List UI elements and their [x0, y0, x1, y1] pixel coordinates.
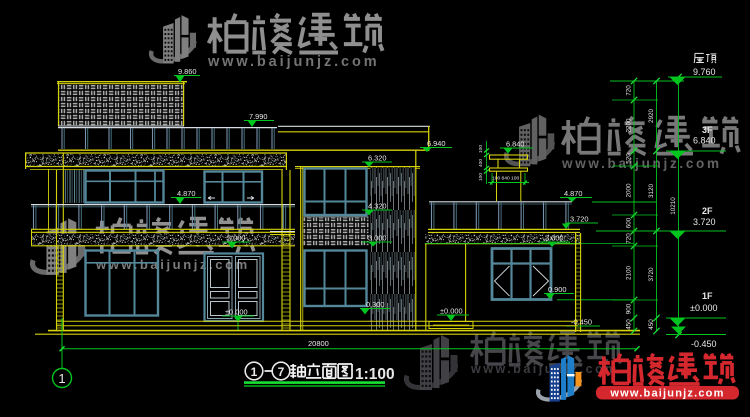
svg-text:3120: 3120	[648, 184, 655, 199]
svg-text:±0.000: ±0.000	[225, 308, 248, 317]
svg-text:600: 600	[626, 217, 633, 228]
svg-text:450: 450	[626, 319, 633, 330]
svg-text:4.870: 4.870	[564, 189, 583, 198]
svg-text:0.900: 0.900	[548, 285, 567, 294]
svg-text:www.baijunjz.com: www.baijunjz.com	[207, 54, 380, 70]
svg-text:-0.450: -0.450	[571, 318, 592, 327]
svg-text:2F: 2F	[702, 206, 713, 216]
svg-text:6.320: 6.320	[368, 154, 387, 163]
svg-text:4.320: 4.320	[368, 202, 387, 211]
svg-text:100: 100	[478, 145, 484, 153]
svg-text:6.940: 6.940	[427, 139, 446, 148]
svg-text:1F: 1F	[702, 291, 713, 301]
svg-text:900: 900	[626, 303, 633, 314]
svg-text:520: 520	[626, 153, 633, 164]
svg-text:0.300: 0.300	[366, 300, 385, 309]
svg-text:3720: 3720	[648, 267, 655, 282]
svg-text:www.baijunjz.com: www.baijunjz.com	[609, 388, 724, 400]
svg-text:1: 1	[58, 371, 65, 386]
svg-text:2200: 2200	[626, 118, 633, 133]
svg-text:9.760: 9.760	[693, 67, 716, 77]
svg-text:720: 720	[626, 233, 633, 244]
svg-text:2100: 2100	[626, 266, 633, 281]
svg-text:9.860: 9.860	[178, 67, 197, 76]
svg-text:1:100: 1:100	[355, 366, 395, 383]
svg-text:7.990: 7.990	[249, 112, 268, 121]
svg-text:10210: 10210	[670, 197, 677, 215]
svg-text:3.000: 3.000	[368, 234, 387, 243]
svg-text:3.000: 3.000	[227, 234, 246, 243]
svg-text:3F: 3F	[702, 125, 713, 135]
svg-text:450: 450	[648, 319, 655, 330]
svg-text:www.baijunjz.com: www.baijunjz.com	[470, 362, 619, 376]
svg-text:720: 720	[626, 85, 633, 96]
svg-text:-0.450: -0.450	[691, 339, 717, 349]
svg-text:3.000: 3.000	[545, 234, 564, 243]
svg-text:2920: 2920	[648, 109, 655, 124]
svg-text:6.840: 6.840	[506, 140, 525, 149]
svg-text:100 840 100: 100 840 100	[492, 176, 519, 182]
svg-text:7: 7	[278, 365, 285, 379]
svg-text:±0.000: ±0.000	[440, 307, 463, 316]
svg-text:2000: 2000	[626, 183, 633, 198]
svg-text:4.870: 4.870	[177, 189, 196, 198]
svg-text:3.720: 3.720	[693, 217, 716, 227]
svg-text:400: 400	[478, 159, 484, 167]
svg-text:6.840: 6.840	[693, 136, 716, 146]
svg-text:1: 1	[251, 365, 258, 379]
svg-text:20800: 20800	[308, 339, 329, 348]
svg-text:3.720: 3.720	[570, 215, 589, 224]
svg-text:www.baijunjz.com: www.baijunjz.com	[561, 156, 722, 171]
svg-text:100: 100	[478, 173, 484, 181]
svg-text:±0.000: ±0.000	[690, 303, 717, 313]
